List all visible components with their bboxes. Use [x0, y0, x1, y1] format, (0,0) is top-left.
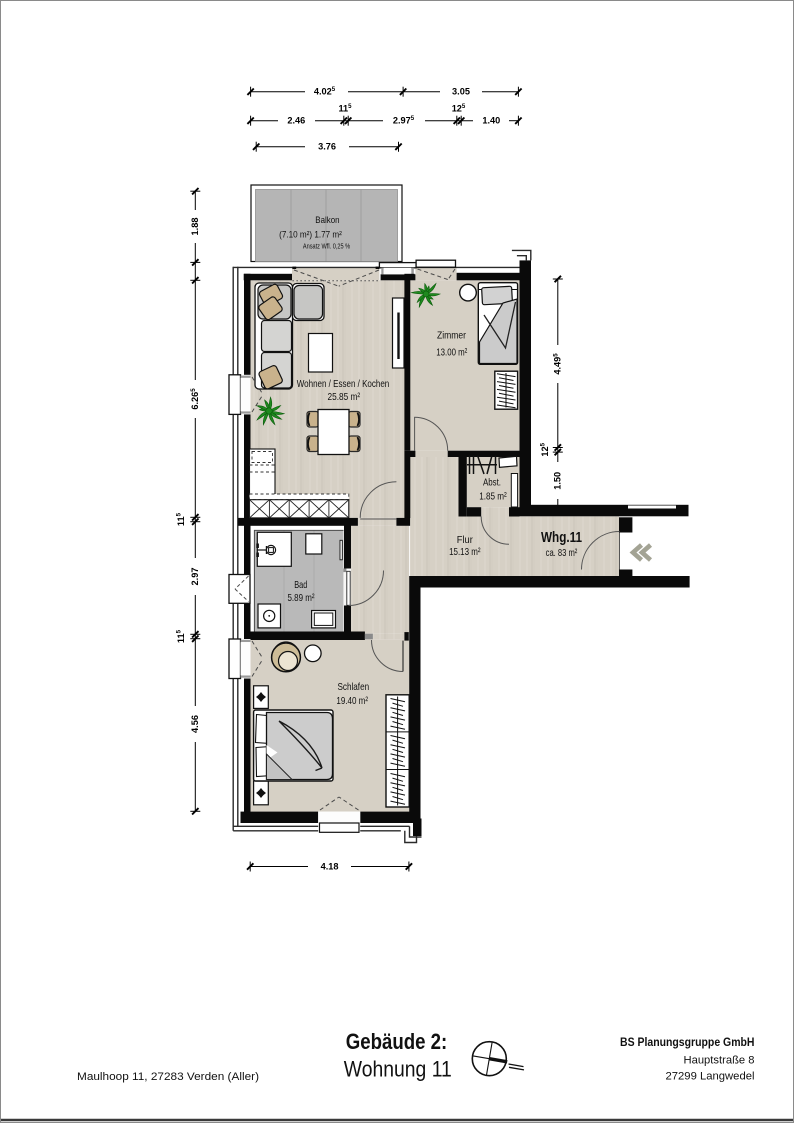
svg-text:Schlafen: Schlafen	[337, 682, 369, 693]
svg-text:2.46: 2.46	[287, 116, 305, 126]
svg-text:13.00 m²: 13.00 m²	[436, 348, 467, 359]
svg-text:Wohnung 11: Wohnung 11	[344, 1057, 452, 1082]
svg-text:3.05: 3.05	[452, 87, 470, 97]
svg-text:Zimmer: Zimmer	[437, 330, 466, 341]
svg-text:ca. 83 m²: ca. 83 m²	[546, 548, 578, 559]
svg-text:6.265: 6.265	[189, 388, 200, 410]
svg-text:2.97: 2.97	[190, 568, 200, 586]
svg-text:19.40 m²: 19.40 m²	[336, 696, 368, 707]
svg-text:115: 115	[175, 512, 186, 526]
svg-text:2.975: 2.975	[393, 115, 415, 126]
svg-text:Abst.: Abst.	[483, 478, 501, 489]
svg-text:115: 115	[175, 629, 186, 643]
svg-text:1.50: 1.50	[553, 472, 563, 490]
svg-text:25.85 m²: 25.85 m²	[328, 392, 361, 403]
svg-text:125: 125	[539, 442, 550, 456]
svg-text:Flur: Flur	[457, 535, 474, 546]
svg-text:Gebäude 2:: Gebäude 2:	[346, 1029, 448, 1054]
svg-text:(7.10 m²) 1.77 m²: (7.10 m²) 1.77 m²	[279, 229, 342, 240]
svg-text:4.56: 4.56	[190, 715, 200, 733]
svg-text:5.89 m²: 5.89 m²	[288, 593, 315, 604]
svg-text:Hauptstraße 8: Hauptstraße 8	[684, 1055, 755, 1067]
svg-text:15.13 m²: 15.13 m²	[449, 547, 481, 558]
svg-text:125: 125	[452, 103, 466, 114]
svg-text:1.40: 1.40	[482, 116, 500, 126]
svg-text:BS Planungsgruppe GmbH: BS Planungsgruppe GmbH	[620, 1037, 755, 1049]
svg-text:Balkon: Balkon	[315, 214, 339, 225]
svg-text:1.88: 1.88	[190, 218, 200, 236]
svg-text:115: 115	[338, 103, 352, 114]
svg-text:Ansatz Wfl. 0,25 %: Ansatz Wfl. 0,25 %	[303, 241, 351, 250]
svg-text:27299 Langwedel: 27299 Langwedel	[666, 1070, 755, 1082]
svg-text:4.025: 4.025	[314, 86, 336, 97]
svg-text:4.18: 4.18	[321, 861, 339, 871]
svg-text:Maulhoop 11, 27283 Verden (All: Maulhoop 11, 27283 Verden (Aller)	[77, 1071, 259, 1083]
svg-text:Bad: Bad	[294, 580, 307, 591]
svg-text:1.85 m²: 1.85 m²	[479, 491, 507, 502]
svg-text:4.495: 4.495	[552, 353, 563, 375]
svg-text:Wohnen / Essen / Kochen: Wohnen / Essen / Kochen	[297, 379, 390, 390]
svg-text:3.76: 3.76	[318, 142, 336, 152]
svg-text:Whg.11: Whg.11	[541, 530, 582, 546]
